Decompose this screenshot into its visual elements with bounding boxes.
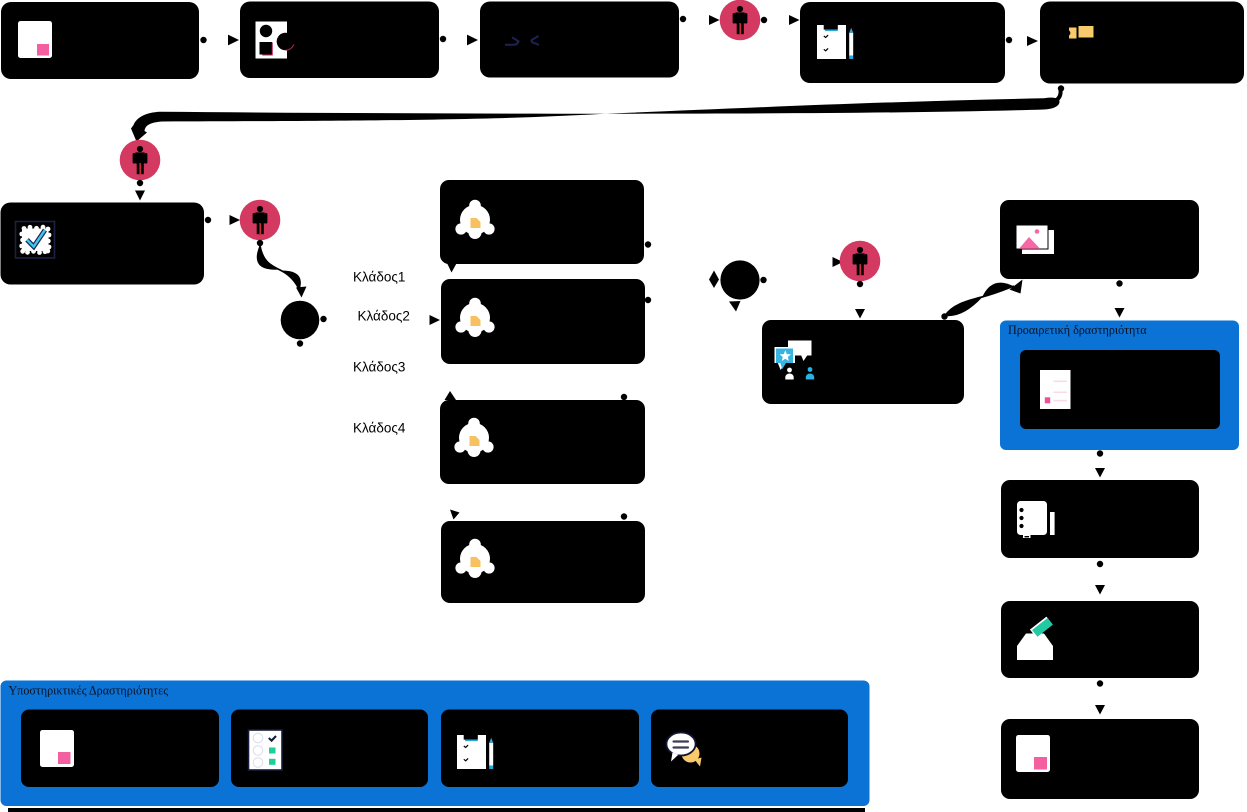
svg-text:Κλάδος4: Κλάδος4 [353,421,406,436]
svg-text:Προαιρετική δραστηριότητα: Προαιρετική δραστηριότητα [1008,323,1147,337]
svg-text:Υποστηρικτικές Δραστηριότητες: Υποστηρικτικές Δραστηριότητες [9,684,169,698]
svg-text:Κλάδος3: Κλάδος3 [353,360,405,375]
svg-text:Κλάδος2: Κλάδος2 [358,309,410,324]
svg-text:Κλάδος1: Κλάδος1 [353,270,405,285]
